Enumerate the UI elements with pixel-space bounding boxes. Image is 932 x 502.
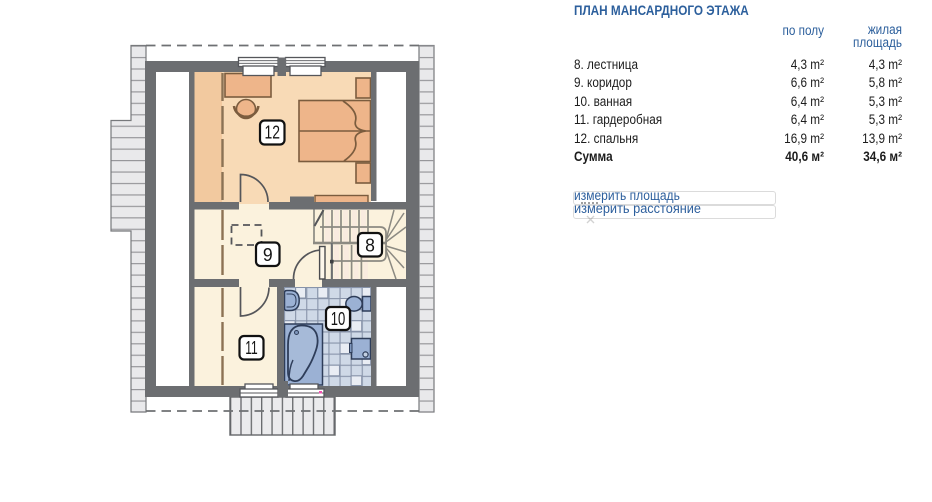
svg-text:9: 9 [263,244,273,265]
svg-text:8: 8 [365,234,375,255]
svg-text:11: 11 [245,337,258,358]
svg-text:10: 10 [331,308,346,329]
svg-text:12: 12 [264,122,280,143]
